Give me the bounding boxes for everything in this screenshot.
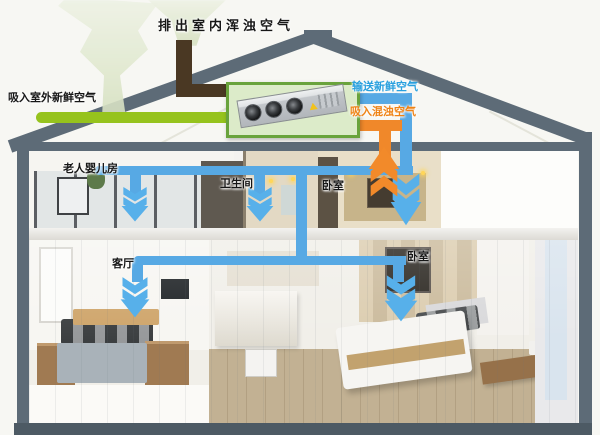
room-label-bedroom-lower: 卧室 (407, 248, 429, 264)
upper-blank-area (441, 151, 578, 232)
supply-arrow-elderly-room-icon (121, 186, 149, 222)
supply-arrow-bedroom-lower-icon (384, 274, 418, 322)
unit-vent-slots (318, 92, 340, 109)
wall-right (579, 132, 592, 427)
duct-riser-to-lower-floor (296, 166, 307, 261)
ventilation-diagram: 排出室内浑浊空气 吸入室外新鲜空气 输送新鲜空气 吸入混浊空气 老人婴儿房 卫生… (0, 0, 600, 435)
fresh-air-intake-pipe (36, 112, 232, 123)
room-label-living-room: 客厅 (112, 255, 134, 271)
room-label-bedroom-upper: 卧室 (322, 177, 344, 193)
supply-air-label: 输送新鲜空气 (352, 78, 418, 94)
unit-fan-icon (264, 100, 283, 119)
room-label-elderly-baby: 老人婴儿房 (63, 160, 118, 176)
bathroom-light (269, 179, 273, 183)
attic-floor-band (20, 142, 586, 151)
return-air-label: 吸入混浊空气 (350, 103, 416, 119)
supply-arrow-living-room-icon (120, 276, 150, 318)
bathroom-light (291, 177, 295, 181)
warning-triangle-icon (309, 102, 318, 110)
ground-band (14, 423, 592, 435)
exhaust-air-label: 排出室内浑浊空气 (158, 15, 294, 34)
supply-arrow-bathroom-icon (246, 186, 274, 222)
unit-fan-icon (243, 103, 262, 122)
roof-peak (304, 30, 332, 44)
unit-fan-icon (285, 96, 304, 115)
return-arrow-up-icon (368, 146, 400, 198)
whiteboard (57, 177, 89, 215)
intake-air-label: 吸入室外新鲜空气 (8, 89, 96, 105)
wall-left (17, 146, 29, 427)
lower-distribution-duct (134, 256, 406, 265)
room-label-bathroom: 卫生间 (220, 175, 253, 191)
